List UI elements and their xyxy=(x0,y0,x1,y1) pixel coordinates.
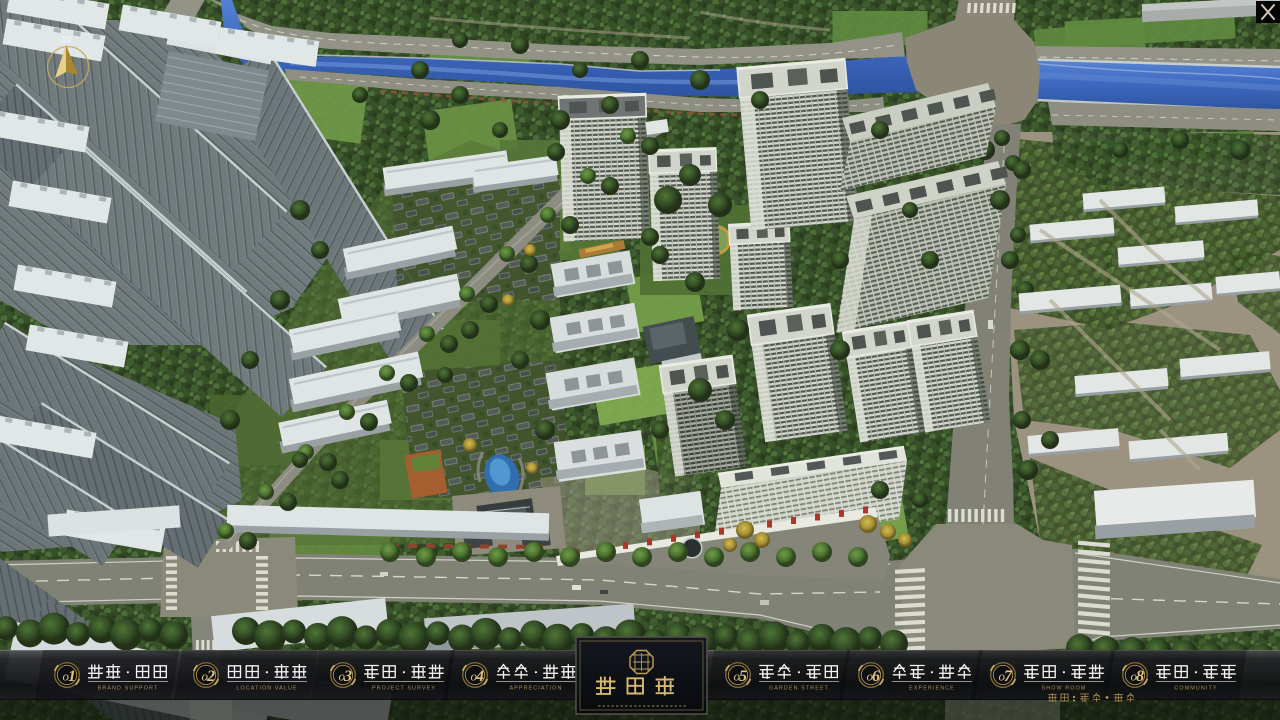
svg-text:6: 6 xyxy=(872,668,880,685)
svg-text:4: 4 xyxy=(475,668,484,685)
svg-text:EXPERIENCE: EXPERIENCE xyxy=(909,686,955,692)
svg-text:5: 5 xyxy=(739,668,747,685)
svg-text:SHOW ROOM: SHOW ROOM xyxy=(1042,686,1087,692)
svg-text:LOCATION VALUE: LOCATION VALUE xyxy=(236,686,297,692)
svg-text:COMMUNITY: COMMUNITY xyxy=(1174,686,1217,692)
svg-text:8: 8 xyxy=(1136,668,1144,685)
svg-text:GARDEN STREET: GARDEN STREET xyxy=(769,686,829,692)
svg-text:2: 2 xyxy=(206,668,215,685)
svg-text:7: 7 xyxy=(1004,668,1013,685)
svg-text:BRAND SUPPORT: BRAND SUPPORT xyxy=(98,686,159,692)
svg-text:APPRECIATION: APPRECIATION xyxy=(510,686,563,692)
svg-text:3: 3 xyxy=(343,668,352,685)
svg-text:1: 1 xyxy=(68,668,76,685)
svg-text:PROJECT SURVEY: PROJECT SURVEY xyxy=(372,686,436,692)
